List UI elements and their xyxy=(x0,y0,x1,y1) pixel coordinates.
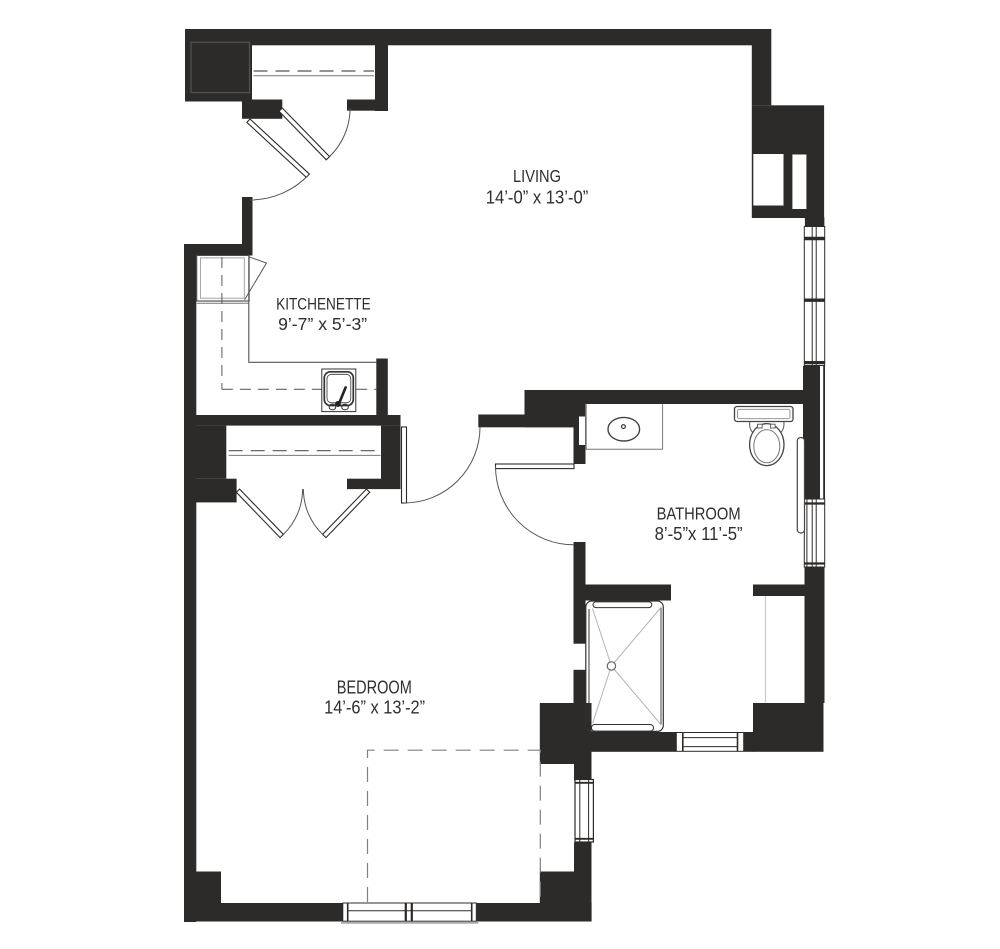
svg-text:BEDROOM: BEDROOM xyxy=(337,677,412,698)
svg-text:14’-0” x 13’-0”: 14’-0” x 13’-0” xyxy=(486,188,589,208)
svg-text:8’-5”x 11’-5”: 8’-5”x 11’-5” xyxy=(655,524,743,544)
svg-text:KITCHENETTE: KITCHENETTE xyxy=(276,296,371,314)
svg-text:BATHROOM: BATHROOM xyxy=(657,504,741,524)
svg-text:9’-7” x 5’-3”: 9’-7” x 5’-3” xyxy=(278,314,367,334)
svg-text:LIVING: LIVING xyxy=(513,166,561,186)
svg-text:14’-6” x 13’-2”: 14’-6” x 13’-2” xyxy=(324,697,425,718)
